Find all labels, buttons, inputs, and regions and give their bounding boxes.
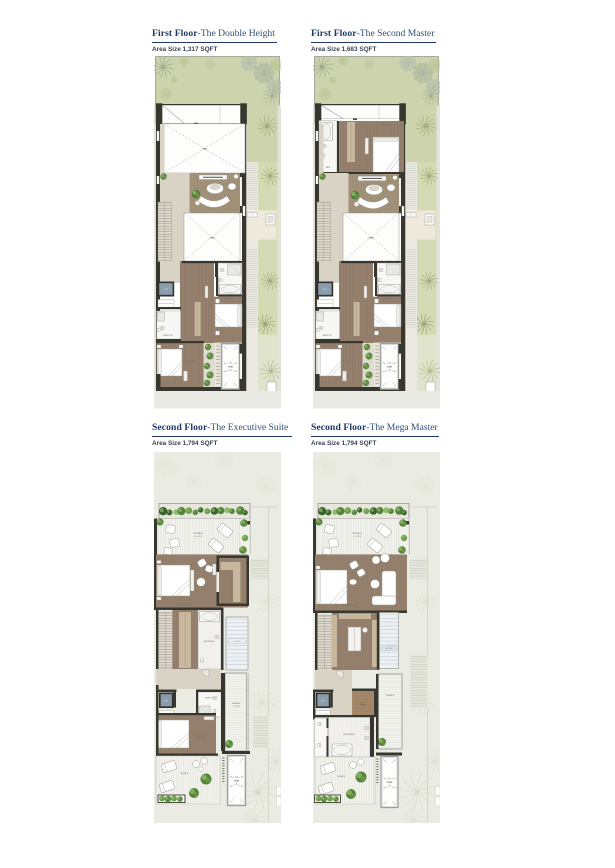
svg-text:LIFT: LIFT: [164, 289, 169, 291]
svg-text:VOID: VOID: [209, 238, 215, 240]
svg-text:BEDROOM 1: BEDROOM 1: [383, 299, 393, 301]
svg-text:LIFT: LIFT: [164, 700, 169, 702]
svg-text:BEDROOM 3: BEDROOM 3: [381, 125, 391, 127]
svg-text:TERRACE: TERRACE: [352, 532, 362, 535]
svg-text:TERRACE: TERRACE: [232, 702, 241, 705]
svg-text:LIFT: LIFT: [323, 289, 328, 291]
svg-text:5.4 x 3.7 M: 5.4 x 3.7 M: [353, 536, 361, 538]
svg-text:BEDROOM 2: BEDROOM 2: [185, 361, 194, 363]
svg-text:5.4 x 3.7 M: 5.4 x 3.7 M: [194, 536, 202, 538]
svg-text:TERRACE: TERRACE: [386, 694, 395, 697]
svg-text:SKYLIGHT: SKYLIGHT: [386, 648, 393, 650]
svg-text:BEDROOM 3: BEDROOM 3: [196, 736, 206, 738]
svg-text:VOID: VOID: [202, 149, 208, 151]
svg-text:TERRACE: TERRACE: [180, 772, 189, 775]
svg-text:VOID: VOID: [228, 366, 234, 368]
svg-text:SKYLIGHT: SKYLIGHT: [233, 641, 241, 643]
svg-text:TERRACE: TERRACE: [193, 532, 203, 535]
svg-text:7.6 x 4.2 M: 7.6 x 4.2 M: [233, 706, 239, 708]
svg-text:BEDROOM 2: BEDROOM 2: [344, 361, 353, 363]
svg-text:VOID: VOID: [387, 782, 393, 784]
svg-text:VOID: VOID: [234, 780, 240, 782]
svg-text:TERRACE: TERRACE: [337, 775, 346, 778]
svg-text:BEDROOM 1: BEDROOM 1: [224, 299, 234, 301]
svg-text:VOID: VOID: [368, 238, 374, 240]
svg-text:VOID: VOID: [387, 366, 393, 368]
svg-text:LIFT: LIFT: [321, 700, 326, 702]
